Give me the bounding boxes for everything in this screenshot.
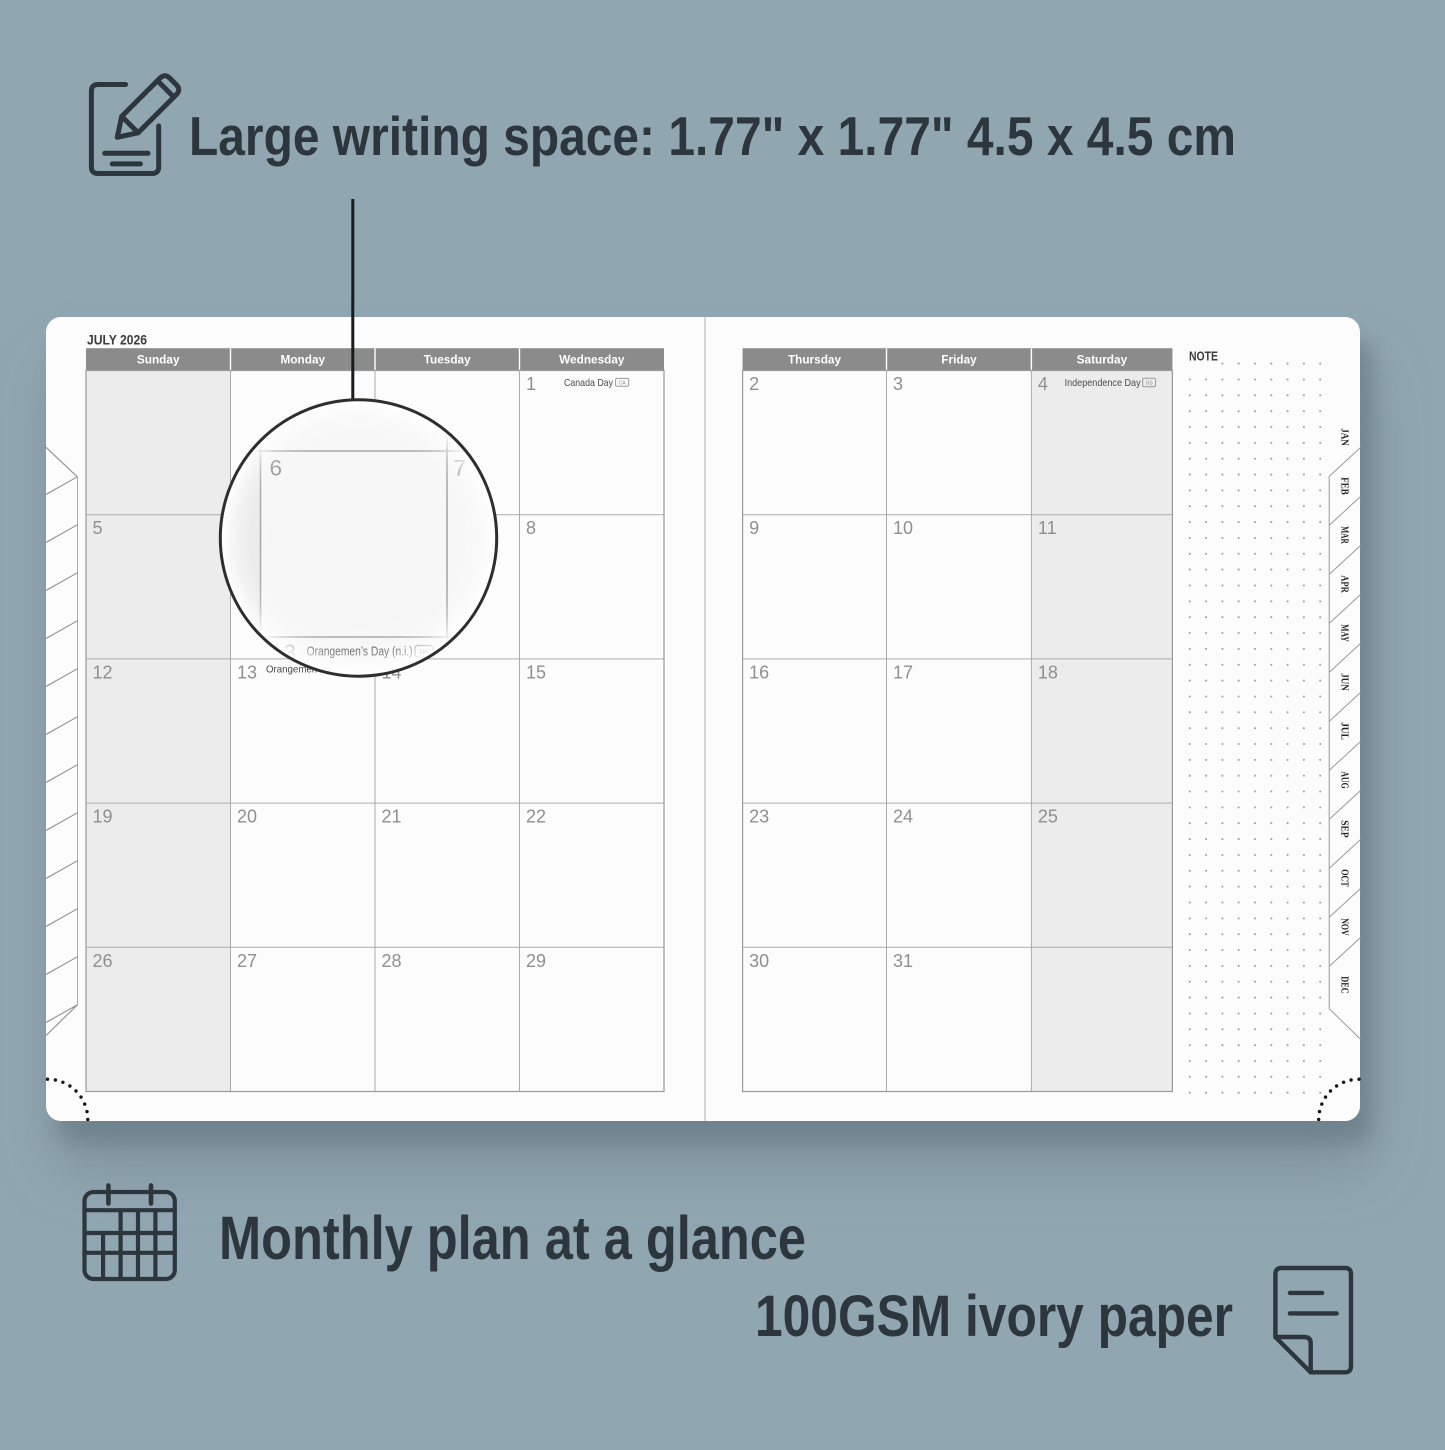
svg-text:JUL: JUL: [1339, 722, 1350, 740]
svg-text:31: 31: [893, 951, 913, 971]
svg-text:MAY: MAY: [1339, 624, 1350, 642]
svg-text:11: 11: [1038, 518, 1057, 538]
svg-text:25: 25: [1038, 807, 1058, 827]
svg-text:100GSM ivory paper: 100GSM ivory paper: [755, 1284, 1233, 1349]
svg-text:19: 19: [93, 807, 113, 827]
svg-text:Tuesday: Tuesday: [424, 353, 471, 367]
svg-text:13: 13: [237, 662, 257, 682]
svg-text:2: 2: [749, 374, 759, 394]
svg-text:8: 8: [526, 518, 536, 538]
svg-text:Thursday: Thursday: [788, 353, 842, 367]
svg-text:Saturday: Saturday: [1077, 353, 1128, 367]
svg-text:US: US: [1146, 381, 1154, 387]
svg-text:DEC: DEC: [1339, 976, 1350, 994]
svg-text:18: 18: [1038, 662, 1058, 682]
svg-text:12: 12: [93, 662, 113, 682]
svg-text:30: 30: [749, 951, 769, 971]
svg-text:27: 27: [237, 951, 257, 971]
svg-text:23: 23: [749, 807, 769, 827]
svg-text:28: 28: [382, 951, 402, 971]
svg-text:JAN: JAN: [1339, 428, 1350, 446]
svg-text:Canada Day: Canada Day: [564, 377, 614, 389]
svg-text:JULY 2026: JULY 2026: [87, 333, 147, 348]
svg-text:AUG: AUG: [1339, 771, 1350, 789]
svg-text:Friday: Friday: [941, 353, 977, 367]
svg-text:FEB: FEB: [1339, 477, 1350, 495]
svg-text:16: 16: [749, 662, 769, 682]
svg-text:Monthly plan at a glance: Monthly plan at a glance: [219, 1204, 806, 1272]
svg-text:SEP: SEP: [1339, 820, 1350, 838]
svg-text:Sunday: Sunday: [137, 353, 180, 367]
svg-text:Large writing space: 1.77" x 1: Large writing space: 1.77" x 1.77" 4.5 x…: [189, 105, 1236, 167]
svg-text:24: 24: [893, 807, 913, 827]
svg-text:4: 4: [1038, 374, 1048, 394]
svg-text:APR: APR: [1339, 575, 1350, 593]
svg-text:26: 26: [93, 951, 113, 971]
svg-text:NOV: NOV: [1339, 918, 1350, 936]
svg-text:21: 21: [382, 807, 402, 827]
svg-text:Independence Day: Independence Day: [1065, 377, 1142, 389]
svg-text:20: 20: [237, 807, 257, 827]
svg-text:Monday: Monday: [281, 353, 326, 367]
svg-text:3: 3: [893, 374, 903, 394]
svg-text:10: 10: [893, 518, 913, 538]
svg-text:OCT: OCT: [1339, 869, 1350, 887]
svg-text:JUN: JUN: [1339, 673, 1350, 691]
svg-text:MAR: MAR: [1339, 526, 1350, 544]
svg-text:22: 22: [526, 807, 546, 827]
svg-text:9: 9: [749, 518, 759, 538]
svg-text:29: 29: [526, 951, 546, 971]
svg-text:1: 1: [526, 374, 536, 394]
svg-text:15: 15: [526, 662, 546, 682]
svg-text:CA: CA: [619, 380, 627, 386]
svg-text:NOTE: NOTE: [1189, 350, 1218, 364]
svg-text:Wednesday: Wednesday: [559, 353, 625, 367]
svg-text:17: 17: [893, 662, 913, 682]
svg-text:5: 5: [93, 518, 103, 538]
